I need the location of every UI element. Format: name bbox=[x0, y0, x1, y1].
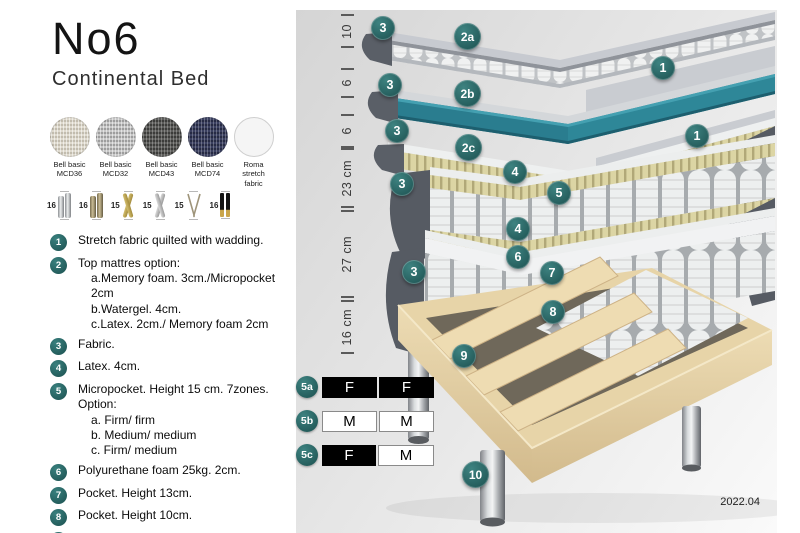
diagram-badge: 2a bbox=[454, 23, 481, 50]
feature-badge: 2 bbox=[50, 257, 67, 274]
firmness-row: 5c F M bbox=[296, 444, 434, 466]
ruler-segment: 23 cm bbox=[340, 148, 354, 208]
feature-item: 6 Polyurethane foam 25kg. 2cm. bbox=[50, 463, 296, 481]
ruler-segment: 10 bbox=[340, 14, 354, 48]
leg-height: 16 bbox=[210, 201, 219, 210]
leg-option: 15 bbox=[111, 190, 135, 221]
fabric-swatch-image bbox=[188, 117, 228, 157]
firmness-cell: F bbox=[322, 445, 376, 466]
swatch-label: Bell basic bbox=[191, 160, 223, 169]
feature-item: 3 Fabric. bbox=[50, 337, 296, 355]
ruler-tick bbox=[341, 300, 354, 302]
ruler-segment: 27 cm bbox=[340, 210, 354, 298]
feature-text: Polyurethane foam 25kg. 2cm. bbox=[78, 463, 241, 481]
feature-text: Stretch fabric quilted with wadding. bbox=[78, 233, 263, 251]
firmness-badge: 5a bbox=[296, 376, 318, 398]
leg-height: 15 bbox=[175, 201, 184, 210]
feature-text: Top mattres option: bbox=[78, 256, 296, 271]
fabric-swatch-image bbox=[234, 117, 274, 157]
feature-subline: c. Firm/ medium bbox=[78, 443, 296, 458]
ruler-tick bbox=[341, 296, 354, 298]
swatch-code: MCD36 bbox=[57, 169, 82, 178]
leg-option: 15 bbox=[143, 190, 167, 221]
diagram-badge: 9 bbox=[452, 344, 476, 368]
leg-height: 15 bbox=[143, 201, 152, 210]
ruler-tick bbox=[341, 210, 354, 212]
diagram-badge: 8 bbox=[541, 300, 565, 324]
feature-badge: 8 bbox=[50, 509, 67, 526]
ruler-label: 27 cm bbox=[340, 236, 354, 273]
feature-text: Micropocket. Height 15 cm. 7zones. Optio… bbox=[78, 382, 296, 413]
feature-subline: b.Watergel. 4cm. bbox=[78, 302, 296, 317]
cylinder-chrome-leg-icon bbox=[58, 190, 71, 221]
fabric-swatch: Bell basicMCD32 bbox=[95, 117, 136, 188]
feature-text: Latex. 4cm. bbox=[78, 359, 140, 377]
swatch-code: MCD43 bbox=[149, 169, 174, 178]
feature-badge: 3 bbox=[50, 338, 67, 355]
diagram-badge: 5 bbox=[547, 181, 571, 205]
fabric-swatch: Romastretch fabric bbox=[233, 117, 274, 188]
feature-badge: 6 bbox=[50, 464, 67, 481]
diagram-badge: 4 bbox=[506, 217, 530, 241]
leg-option: 16 bbox=[79, 190, 103, 221]
ruler-tick bbox=[341, 206, 354, 208]
fabric-swatch: Bell basicMCD74 bbox=[187, 117, 228, 188]
exploded-bed-diagram: 10 6 6 23 cm 27 cm 16 cm 3 2a 1 3 2b 3 2… bbox=[296, 10, 777, 533]
feature-item: 7 Pocket. Height 13cm. bbox=[50, 486, 296, 504]
brand-block: No6 Continental Bed bbox=[52, 14, 209, 91]
leg-option: 16 bbox=[210, 190, 231, 220]
firmness-row: 5b M M bbox=[296, 410, 434, 432]
diagram-badge: 1 bbox=[651, 56, 675, 80]
fabric-swatch-image bbox=[96, 117, 136, 157]
diagram-badge: 3 bbox=[402, 260, 426, 284]
firmness-row: 5a F F bbox=[296, 376, 434, 398]
leg-height: 15 bbox=[111, 201, 120, 210]
ruler-label: 6 bbox=[340, 127, 354, 134]
fabric-swatch: Bell basicMCD36 bbox=[49, 117, 90, 188]
feature-text: Pocket. Height 10cm. bbox=[78, 508, 192, 526]
ruler-tick bbox=[341, 14, 354, 16]
feature-item: 2 Top mattres option: a.Memory foam. 3cm… bbox=[50, 256, 296, 333]
firmness-cell: F bbox=[322, 377, 377, 398]
leg-height: 16 bbox=[79, 201, 88, 210]
fabric-swatch-image bbox=[142, 117, 182, 157]
diagram-badge: 3 bbox=[371, 16, 395, 40]
ruler-label: 16 cm bbox=[340, 309, 354, 346]
feature-subline: c.Latex. 2cm./ Memory foam 2cm bbox=[78, 317, 296, 332]
swatch-code: MCD74 bbox=[195, 169, 220, 178]
ruler-label: 6 bbox=[340, 79, 354, 86]
swatch-code: stretch fabric bbox=[242, 169, 265, 187]
firmness-badge: 5c bbox=[296, 444, 318, 466]
spec-sheet: No6 Continental Bed Bell basicMCD36 Bell… bbox=[0, 0, 800, 533]
ruler-tick bbox=[341, 68, 354, 70]
ruler-tick bbox=[341, 114, 354, 116]
leg-height: 16 bbox=[47, 201, 56, 210]
ruler-tick bbox=[341, 352, 354, 354]
feature-text: Fabric. bbox=[78, 337, 115, 355]
diagram-badge: 2b bbox=[454, 80, 481, 107]
fabric-swatch: Bell basicMCD43 bbox=[141, 117, 182, 188]
fabric-swatches: Bell basicMCD36 Bell basicMCD32 Bell bas… bbox=[49, 117, 274, 188]
feature-subline: a. Firm/ firm bbox=[78, 413, 296, 428]
diagram-badge: 2c bbox=[455, 134, 482, 161]
diagram-badge: 7 bbox=[540, 261, 564, 285]
feature-badge: 1 bbox=[50, 234, 67, 251]
ruler-tick bbox=[341, 46, 354, 48]
diagram-badge: 4 bbox=[503, 160, 527, 184]
feature-item: 1 Stretch fabric quilted with wadding. bbox=[50, 233, 296, 251]
feature-item: 5 Micropocket. Height 15 cm. 7zones. Opt… bbox=[50, 382, 296, 459]
diagram-badge: 3 bbox=[385, 119, 409, 143]
leg-option: 16 bbox=[47, 190, 71, 221]
cross-gold-leg-icon bbox=[122, 190, 135, 221]
leg-options: 16 16 15 15 15 16 bbox=[47, 186, 230, 224]
feature-subline: a.Memory foam. 3cm./Micropocket 2cm bbox=[78, 271, 296, 302]
cross-silver-leg-icon bbox=[154, 190, 167, 221]
ruler-label: 23 cm bbox=[340, 160, 354, 197]
ruler-label: 10 bbox=[340, 24, 354, 39]
firmness-cell: F bbox=[379, 377, 434, 398]
leg-option: 15 bbox=[175, 190, 202, 221]
features-list: 1 Stretch fabric quilted with wadding. 2… bbox=[50, 233, 296, 533]
ruler-segment: 6 bbox=[340, 68, 354, 98]
page-subtitle: Continental Bed bbox=[52, 68, 209, 91]
feature-badge: 5 bbox=[50, 383, 67, 400]
feature-subline: b. Medium/ medium bbox=[78, 428, 296, 443]
diagram-badge: 10 bbox=[462, 461, 489, 488]
feature-item: 8 Pocket. Height 10cm. bbox=[50, 508, 296, 526]
feature-item: 4 Latex. 4cm. bbox=[50, 359, 296, 377]
hairpin-leg-icon bbox=[186, 190, 202, 221]
swatch-label: Bell basic bbox=[145, 160, 177, 169]
ruler-segment: 16 cm bbox=[340, 300, 354, 354]
diagram-badge: 1 bbox=[685, 124, 709, 148]
ruler-tick bbox=[341, 96, 354, 98]
fabric-swatch-image bbox=[50, 117, 90, 157]
feature-badge: 4 bbox=[50, 360, 67, 377]
firmness-badge: 5b bbox=[296, 410, 318, 432]
tapered-black-gold-leg-icon bbox=[220, 190, 230, 220]
ruler-tick bbox=[341, 148, 354, 150]
ruler-segment: 6 bbox=[340, 114, 354, 148]
swatch-code: MCD32 bbox=[103, 169, 128, 178]
swatch-label: Bell basic bbox=[99, 160, 131, 169]
firmness-cell: M bbox=[379, 411, 434, 432]
version-label: 2022.04 bbox=[720, 496, 760, 508]
firmness-cell: M bbox=[322, 411, 377, 432]
feature-badge: 7 bbox=[50, 487, 67, 504]
diagram-badge: 3 bbox=[378, 73, 402, 97]
page-title: No6 bbox=[52, 14, 209, 64]
firmness-cell: M bbox=[378, 445, 434, 466]
swatch-label: Roma bbox=[243, 160, 263, 169]
cylinder-bronze-leg-icon bbox=[90, 190, 103, 221]
feature-text: Pocket. Height 13cm. bbox=[78, 486, 192, 504]
diagram-badge: 3 bbox=[390, 172, 414, 196]
diagram-badge: 6 bbox=[506, 245, 530, 269]
swatch-label: Bell basic bbox=[53, 160, 85, 169]
